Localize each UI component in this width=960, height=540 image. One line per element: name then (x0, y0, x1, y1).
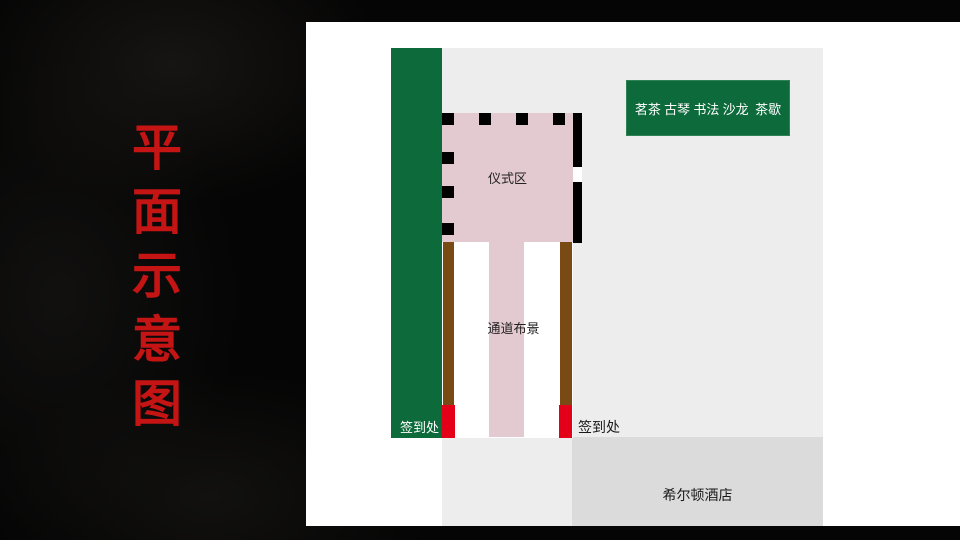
dash-mark-left (442, 152, 454, 164)
dash-mark-top (479, 113, 491, 125)
activities-board: 茗茶 古琴 书法 沙龙 茶歇 (626, 80, 790, 136)
aisle-label: 通道布景 (448, 318, 579, 337)
right-border-bar-top (573, 113, 582, 167)
slide: 平面示意图 希尔顿酒店 仪式区 通道布景 签到处 签到处 (0, 0, 960, 540)
dash-mark-left (442, 223, 454, 235)
signin-label-right: 签到处 (578, 417, 620, 437)
right-border-gap (573, 167, 582, 182)
signin-marker-right (559, 405, 572, 438)
dash-mark-top (516, 113, 528, 125)
stage-backdrop-strip (391, 48, 442, 438)
dash-mark-left (442, 186, 454, 198)
hotel-area: 希尔顿酒店 (572, 437, 823, 526)
page-title: 平面示意图 (128, 121, 178, 441)
floor-plan-panel: 希尔顿酒店 仪式区 通道布景 签到处 签到处 茗茶 古琴 书法 沙龙 茶歇 (306, 22, 960, 526)
dash-mark-corner (442, 113, 454, 125)
aisle-carpet (489, 242, 524, 437)
activities-board-label: 茗茶 古琴 书法 沙龙 茶歇 (635, 99, 781, 118)
ceremony-label: 仪式区 (488, 168, 527, 187)
right-border-bar-bottom (573, 182, 582, 243)
hotel-label: 希尔顿酒店 (663, 485, 733, 505)
ceremony-area: 仪式区 (442, 113, 573, 242)
dash-mark-top (553, 113, 565, 125)
signin-marker-left (442, 405, 455, 438)
signin-label-left: 签到处 (394, 417, 439, 436)
